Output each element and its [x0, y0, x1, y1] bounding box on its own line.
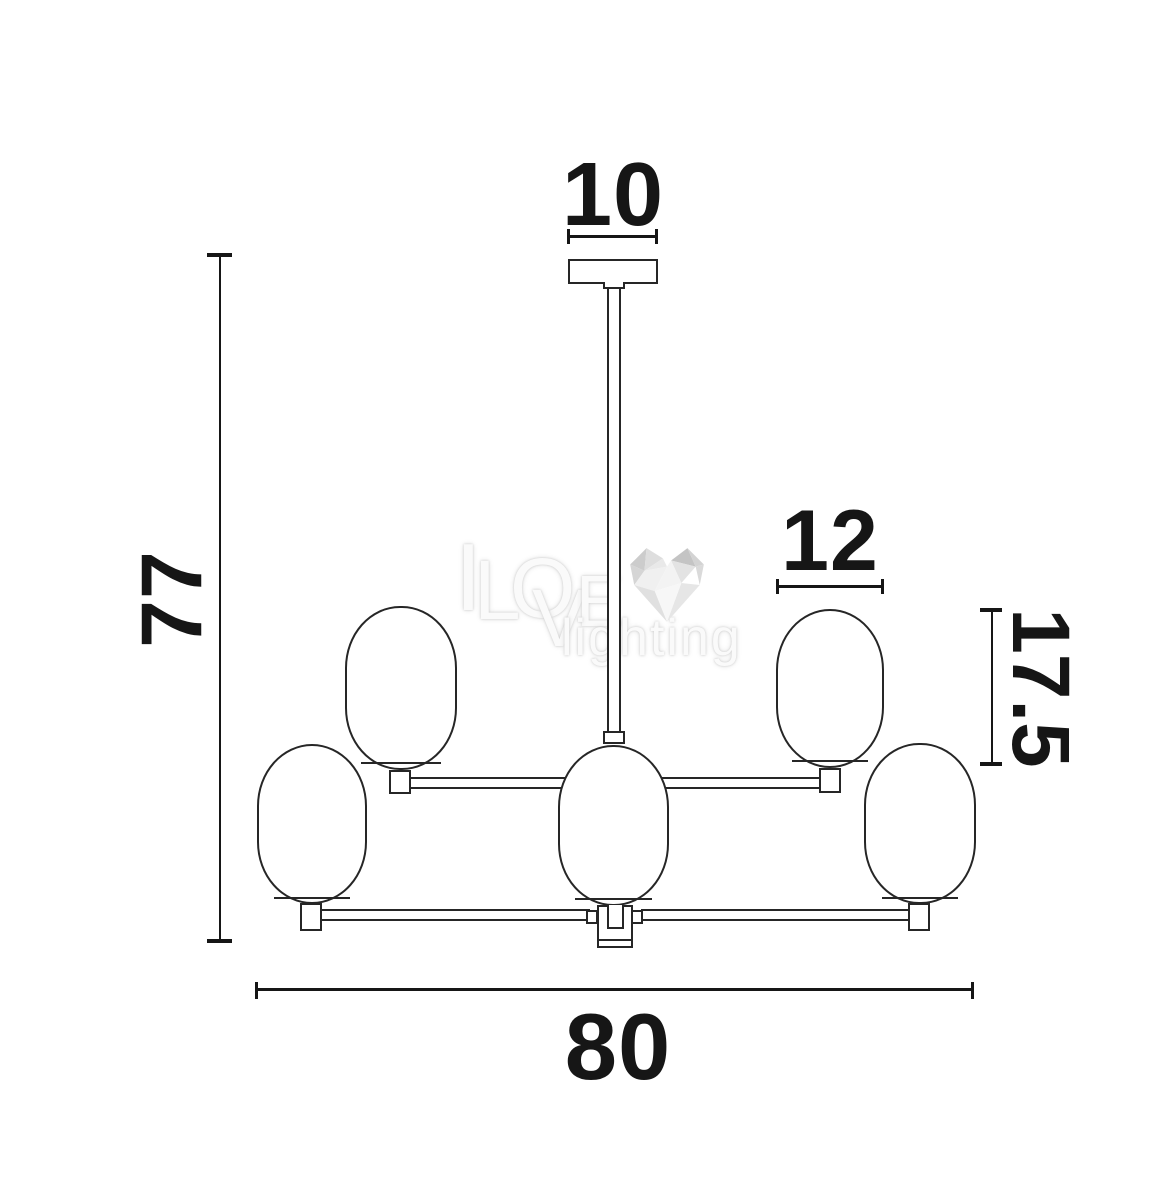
lower-arm-right [641, 909, 909, 921]
dim-overall-height-tick-top [207, 253, 232, 257]
dim-shade-height-label: 17.5 [1000, 588, 1080, 788]
dim-shade-width-line [778, 585, 884, 588]
low-poly-heart-icon [624, 544, 710, 624]
drawing-canvas: I L O V E lighting 10 77 12 [0, 0, 1170, 1200]
lamp-center-base [575, 898, 652, 900]
lamp-lower-right-socket [908, 903, 930, 931]
dim-overall-width-tick-left [255, 982, 258, 999]
dim-overall-width-tick-right [971, 982, 974, 999]
dim-overall-width-label: 80 [548, 1000, 688, 1094]
dim-overall-height-line [219, 255, 221, 943]
lamp-center-shade [558, 745, 669, 906]
lower-arm-left [320, 909, 590, 921]
canopy-neck [603, 282, 625, 289]
lamp-upper-left-socket [389, 770, 411, 794]
ceiling-canopy [568, 259, 658, 284]
lamp-lower-left-base [274, 897, 350, 899]
dim-shade-height-tick-bottom [980, 762, 1002, 766]
dim-shade-width-tick-left [776, 579, 779, 594]
dim-overall-height-label: 77 [132, 519, 212, 679]
lamp-lower-left-socket [300, 903, 322, 931]
lamp-lower-right-shade [864, 743, 976, 904]
lamp-upper-left-shade [345, 606, 457, 770]
dim-overall-height-tick-bottom [207, 939, 232, 943]
lamp-upper-right-shade [776, 609, 884, 768]
lamp-upper-left-base [361, 762, 441, 764]
lamp-lower-right-base [882, 897, 958, 899]
lamp-upper-right-socket [819, 768, 841, 793]
dim-canopy-width-line [569, 235, 658, 238]
dim-canopy-width-tick-left [567, 229, 570, 244]
dim-canopy-width-tick-right [655, 229, 658, 244]
center-hub-base-line [599, 939, 631, 941]
dim-overall-width-line [257, 988, 973, 991]
rod-collar [603, 731, 625, 744]
dim-shade-width-label: 12 [768, 498, 892, 584]
center-hub-socket-notch [607, 905, 624, 929]
dim-canopy-width-label: 10 [555, 150, 671, 240]
dim-shade-height-line [991, 610, 993, 766]
lamp-lower-left-shade [257, 744, 367, 904]
hanging-rod [607, 289, 621, 732]
dim-shade-width-tick-right [881, 579, 884, 594]
lamp-upper-right-base [792, 760, 868, 762]
dim-shade-height-tick-top [980, 608, 1002, 612]
